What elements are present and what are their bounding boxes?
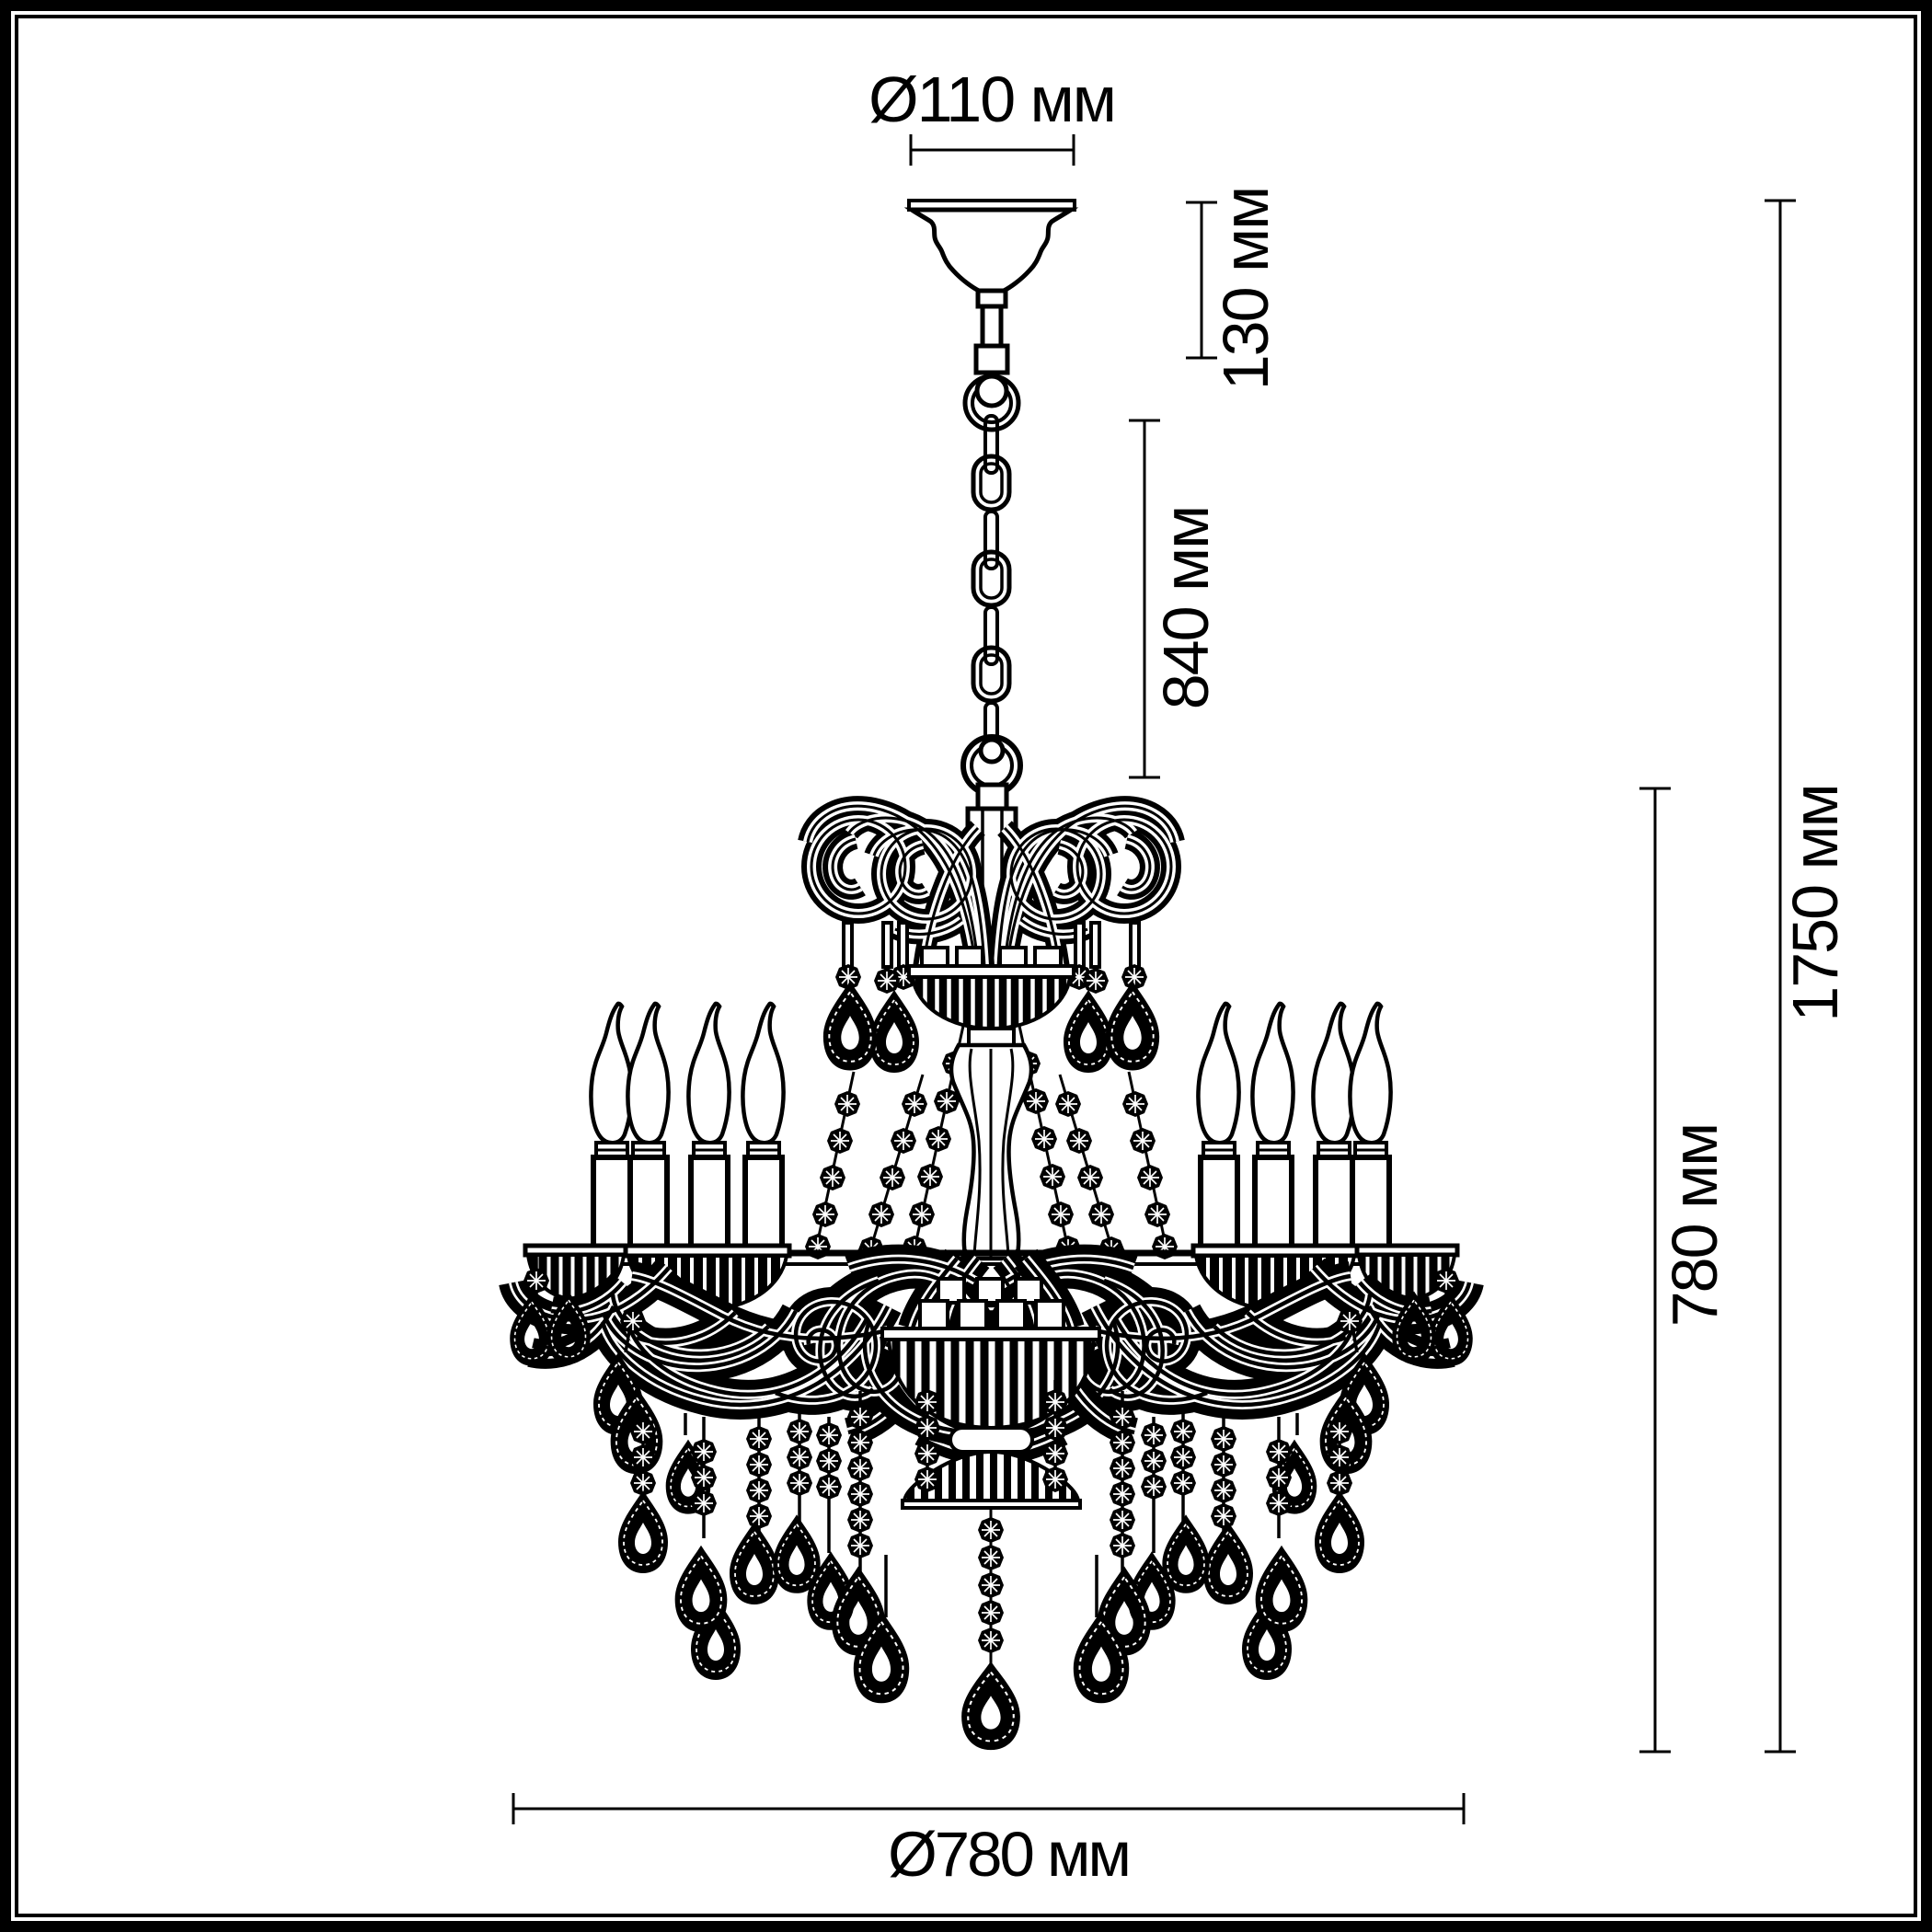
svg-text:1750 мм: 1750 мм: [1779, 785, 1851, 1021]
svg-text:130 мм: 130 мм: [1210, 188, 1282, 391]
svg-text:Ø110 мм: Ø110 мм: [868, 63, 1115, 135]
svg-text:840 мм: 840 мм: [1150, 507, 1222, 710]
svg-text:780 мм: 780 мм: [1659, 1124, 1731, 1328]
svg-text:Ø780 мм: Ø780 мм: [888, 1819, 1129, 1890]
